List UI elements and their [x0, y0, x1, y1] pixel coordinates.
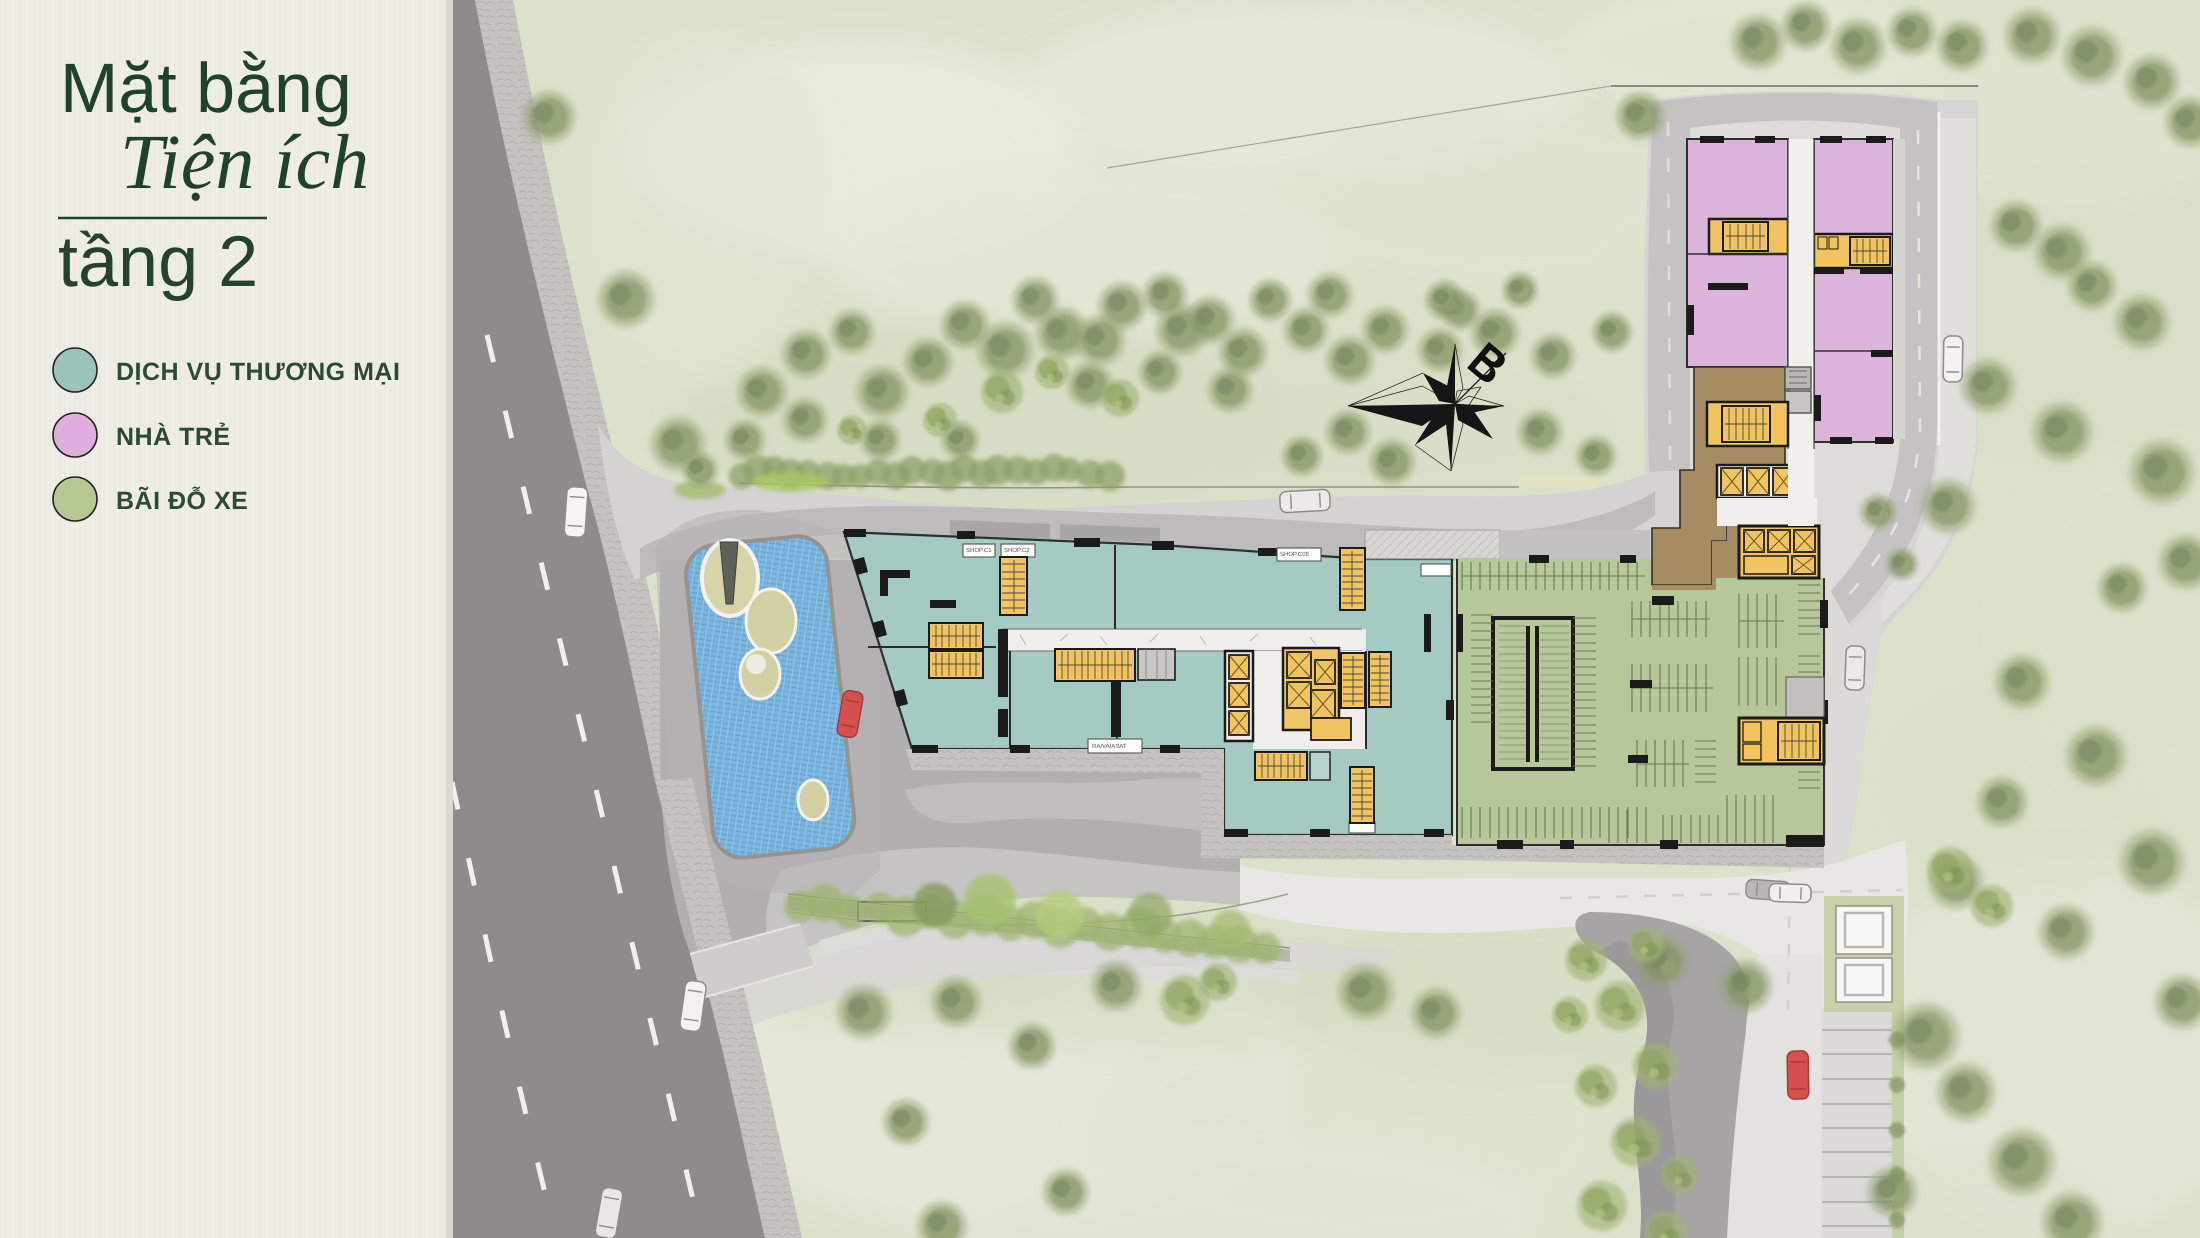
svg-text:Tiện ích: Tiện ích — [120, 118, 369, 205]
svg-text:RA/VA/ASAT: RA/VA/ASAT — [1092, 743, 1127, 750]
svg-text:DỊCH VỤ THƯƠNG MẠI: DỊCH VỤ THƯƠNG MẠI — [116, 358, 400, 386]
svg-text:SHOP.C2: SHOP.C2 — [1004, 547, 1030, 554]
svg-text:BÃI ĐỖ XE: BÃI ĐỖ XE — [116, 486, 248, 515]
svg-text:SHOP.C1: SHOP.C1 — [966, 547, 992, 554]
svg-text:SHOP.C05: SHOP.C05 — [1280, 551, 1310, 558]
svg-text:NHÀ TRẺ: NHÀ TRẺ — [116, 422, 231, 451]
svg-text:tầng 2: tầng 2 — [58, 222, 258, 302]
svg-text:Mặt bằng: Mặt bằng — [60, 49, 352, 127]
